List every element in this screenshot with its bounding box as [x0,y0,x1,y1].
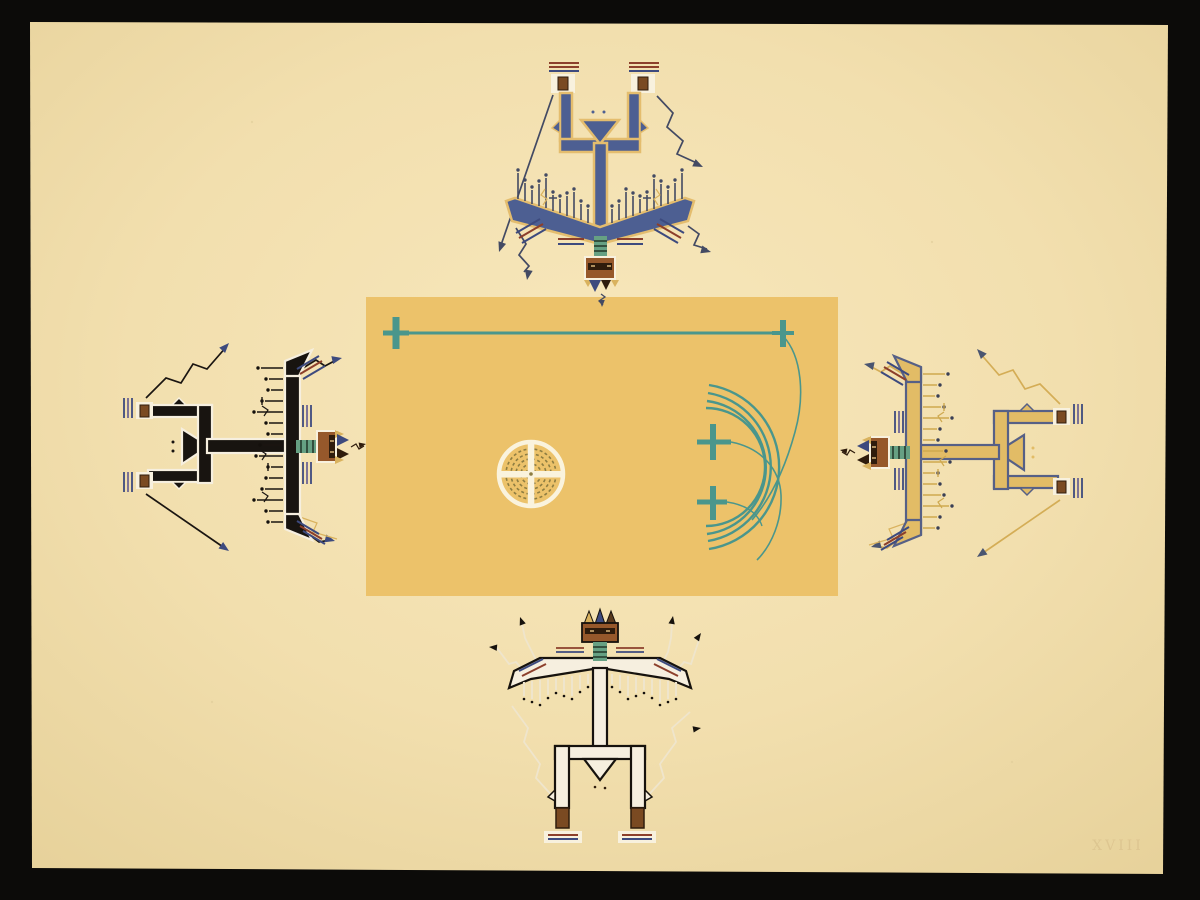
center-panel [366,297,838,596]
artwork-image: XVIII [0,0,1200,900]
plate-number: XVIII [1092,838,1144,854]
water-circle [497,440,565,508]
photo-stage: XVIII [0,0,1200,900]
body [593,668,607,758]
